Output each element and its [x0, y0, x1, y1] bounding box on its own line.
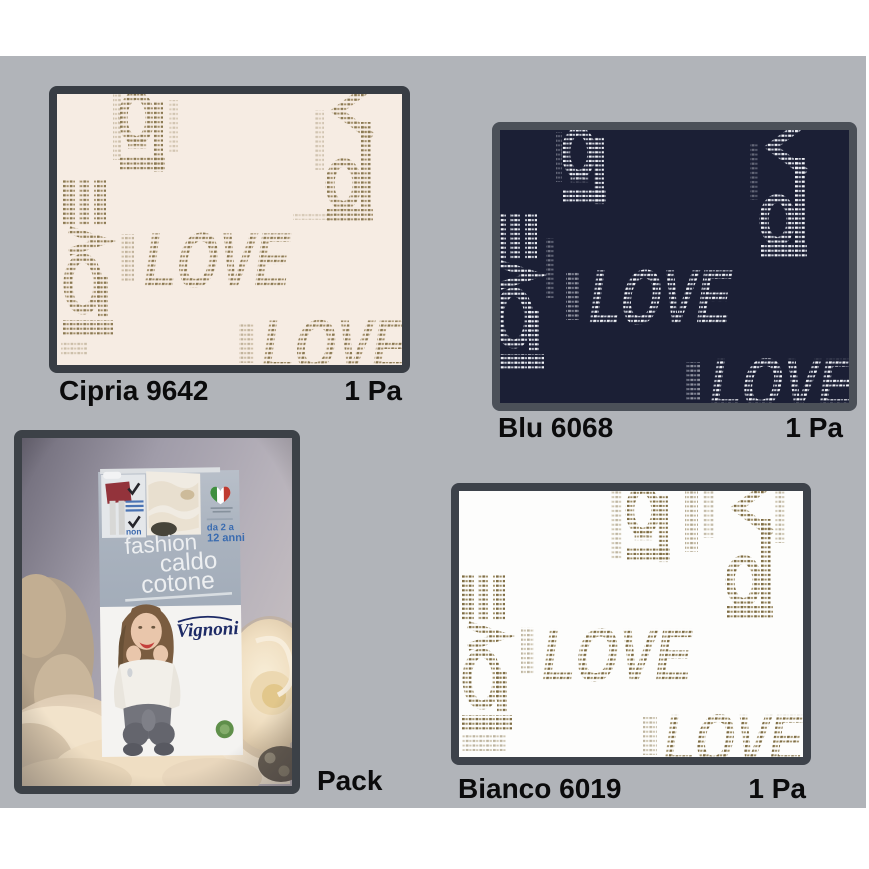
svg-text:LOVE: LOVE	[257, 306, 402, 365]
svg-text:LOVE: LOVE	[705, 343, 849, 403]
svg-text:LOVE: LOVE	[537, 613, 699, 698]
svg-text:LOVE: LOVE	[584, 253, 738, 341]
svg-text:LOVE: LOVE	[139, 216, 297, 304]
svg-text:LOVE: LOVE	[659, 699, 803, 757]
